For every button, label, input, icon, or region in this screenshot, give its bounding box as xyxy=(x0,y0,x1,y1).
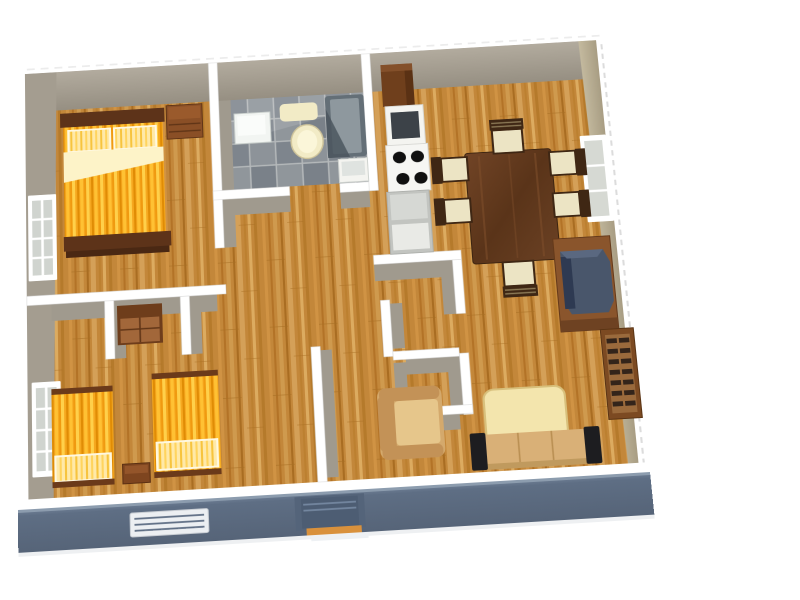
dining-chair-east-1 xyxy=(549,148,588,177)
bath-mat xyxy=(279,102,318,122)
oven xyxy=(385,105,426,146)
pillow xyxy=(68,128,110,152)
tilted-house-plan xyxy=(15,31,656,565)
sofa-arm xyxy=(470,433,489,471)
floor-plan-scene xyxy=(0,0,800,600)
pillow xyxy=(114,126,156,150)
vent-grille xyxy=(130,508,209,537)
bathroom-sink xyxy=(234,112,271,144)
refrigerator xyxy=(380,63,415,107)
bedroom-1-double-bed xyxy=(60,107,172,258)
kitchen-counter xyxy=(387,190,434,254)
dining-chair-east-2 xyxy=(552,189,591,218)
armchair xyxy=(377,385,446,461)
crt-tv xyxy=(560,249,615,315)
window-west-bedroom-1 xyxy=(28,194,57,281)
dining-chair-west-1 xyxy=(431,155,469,184)
dining-chair-north xyxy=(489,118,526,154)
bathtub xyxy=(325,94,367,158)
pillow xyxy=(157,439,219,470)
dining-chair-west-2 xyxy=(434,197,472,226)
dining-chair-south xyxy=(501,260,539,297)
floor-plan-svg xyxy=(15,31,656,565)
bedroom-2-dresser xyxy=(117,303,163,345)
bedroom-1-nightstand xyxy=(166,104,203,140)
bedroom-2-bed-left xyxy=(51,386,114,489)
bathroom-cabinet xyxy=(338,158,368,183)
cooktop xyxy=(386,143,431,192)
bedroom-2-stool xyxy=(123,463,151,484)
dining-table xyxy=(465,148,561,264)
bedroom-2-bed-right xyxy=(152,370,222,478)
pillow xyxy=(55,453,111,482)
